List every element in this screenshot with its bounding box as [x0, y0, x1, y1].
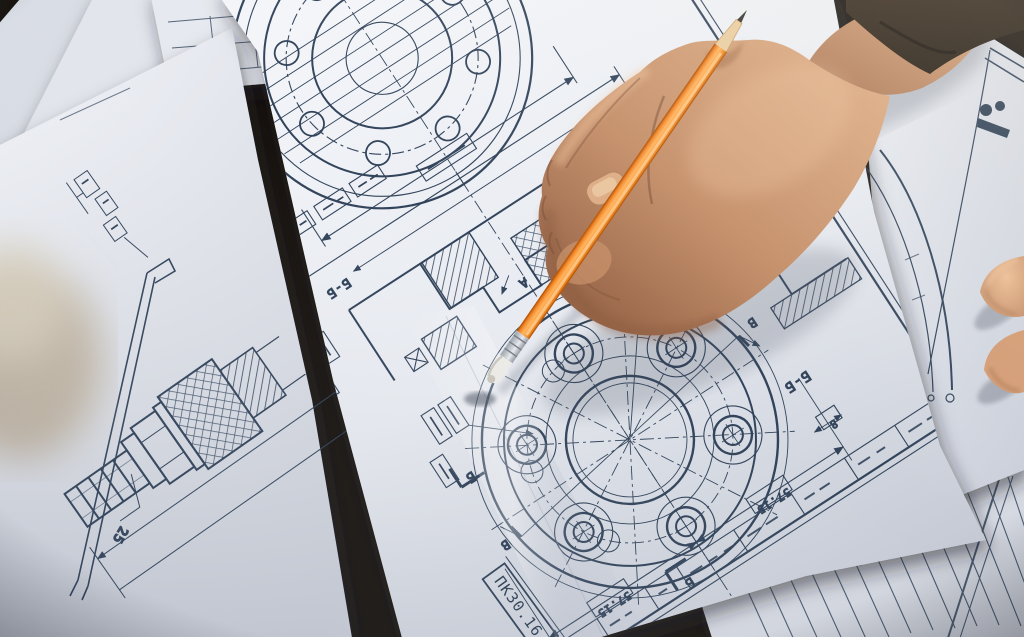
vignette — [0, 0, 1024, 637]
blueprint-photo: 25 — [0, 0, 1024, 637]
photo-scene: 25 — [0, 0, 1024, 637]
